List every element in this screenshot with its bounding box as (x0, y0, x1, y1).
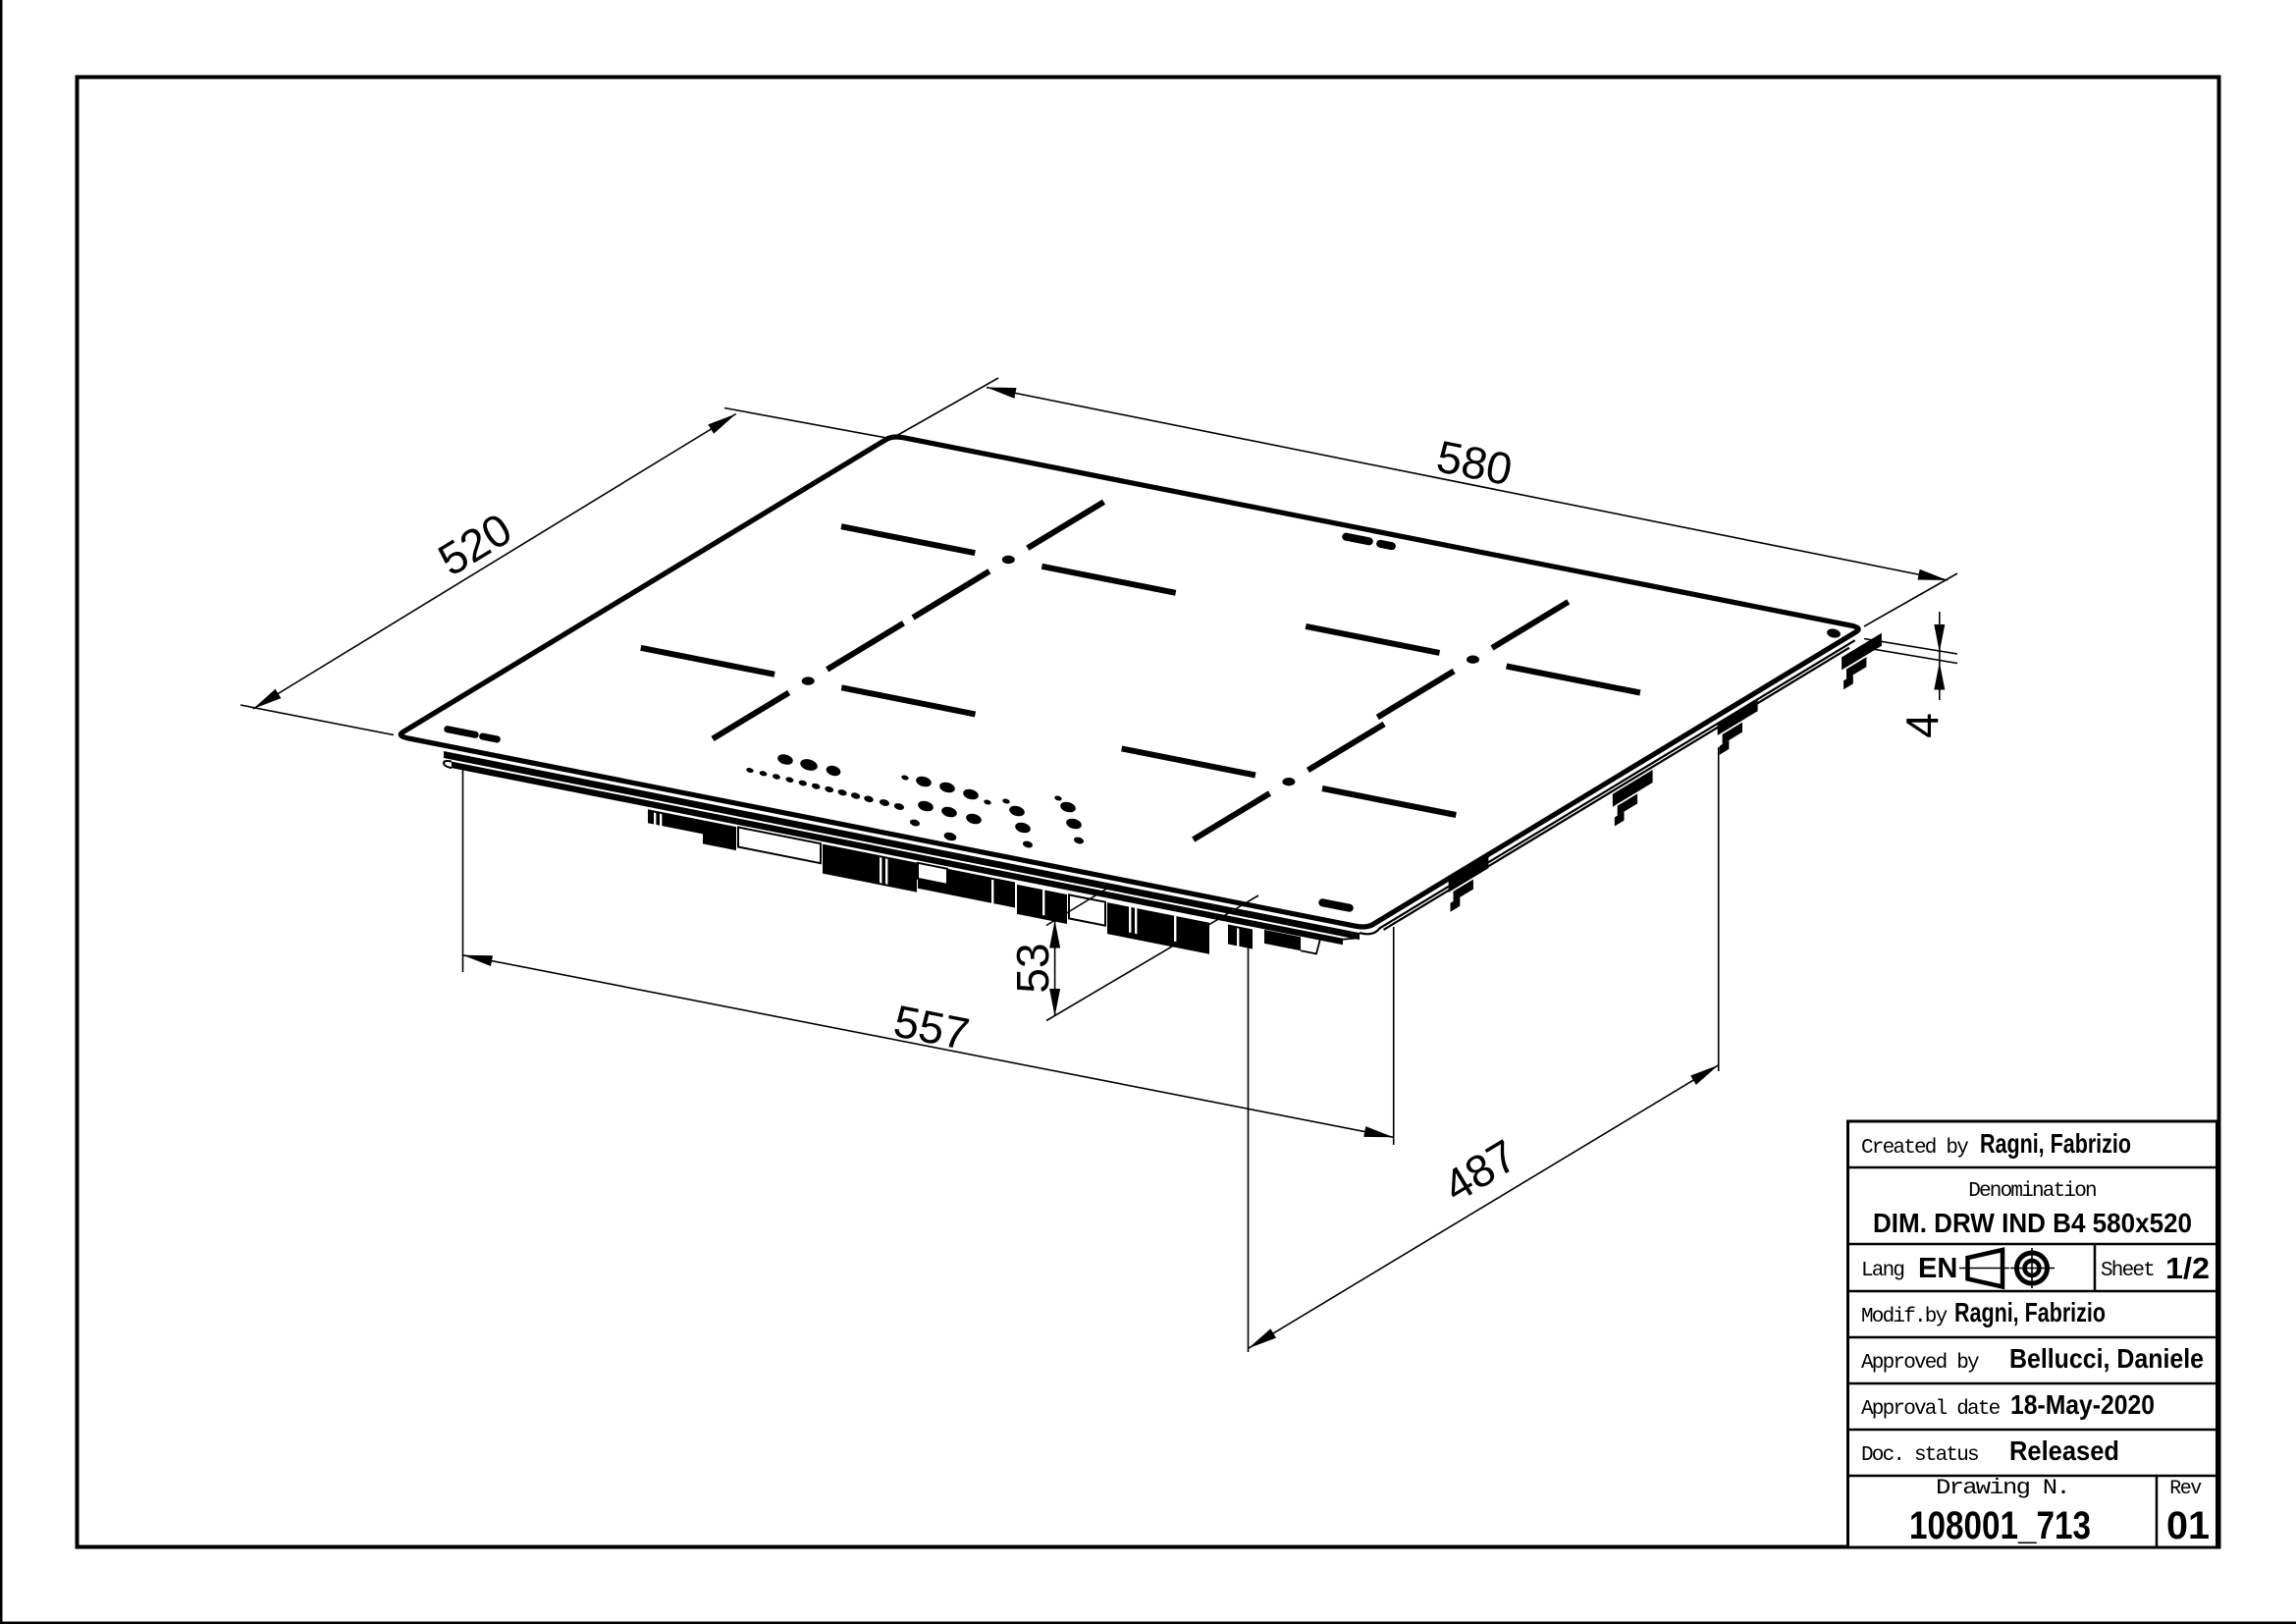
svg-text:Modif.by: Modif.by (1861, 1306, 1948, 1328)
svg-text:01: 01 (2166, 1504, 2210, 1547)
svg-text:Approval date: Approval date (1861, 1398, 2001, 1421)
svg-text:Drawing N.: Drawing N. (1936, 1476, 2069, 1500)
svg-text:487: 487 (1434, 1129, 1525, 1212)
svg-text:108001_713: 108001_713 (1909, 1504, 2091, 1547)
svg-text:Approved by: Approved by (1861, 1352, 1979, 1375)
svg-text:18-May-2020: 18-May-2020 (2010, 1389, 2155, 1420)
svg-text:1/2: 1/2 (2165, 1251, 2210, 1285)
svg-text:520: 520 (429, 503, 520, 585)
svg-text:Ragni, Fabrizio: Ragni, Fabrizio (1954, 1297, 2106, 1327)
svg-text:Sheet: Sheet (2101, 1260, 2154, 1282)
svg-text:Bellucci, Daniele: Bellucci, Daniele (2009, 1343, 2204, 1374)
svg-text:Denomination: Denomination (1968, 1180, 2096, 1203)
svg-text:Lang: Lang (1861, 1260, 1903, 1282)
svg-text:580: 580 (1432, 430, 1516, 495)
svg-text:Created by: Created by (1861, 1137, 1968, 1160)
svg-text:Rev: Rev (2169, 1478, 2202, 1500)
svg-text:Doc. status: Doc. status (1861, 1444, 1978, 1467)
svg-text:DIM. DRW IND B4 580x520: DIM. DRW IND B4 580x520 (1873, 1208, 2192, 1238)
svg-text:EN: EN (1918, 1253, 1957, 1284)
svg-text:4: 4 (1896, 713, 1948, 738)
svg-text:Ragni, Fabrizio: Ragni, Fabrizio (1980, 1128, 2131, 1159)
svg-text:557: 557 (889, 995, 973, 1059)
svg-text:53: 53 (1007, 943, 1058, 993)
svg-text:Released: Released (2009, 1435, 2119, 1466)
